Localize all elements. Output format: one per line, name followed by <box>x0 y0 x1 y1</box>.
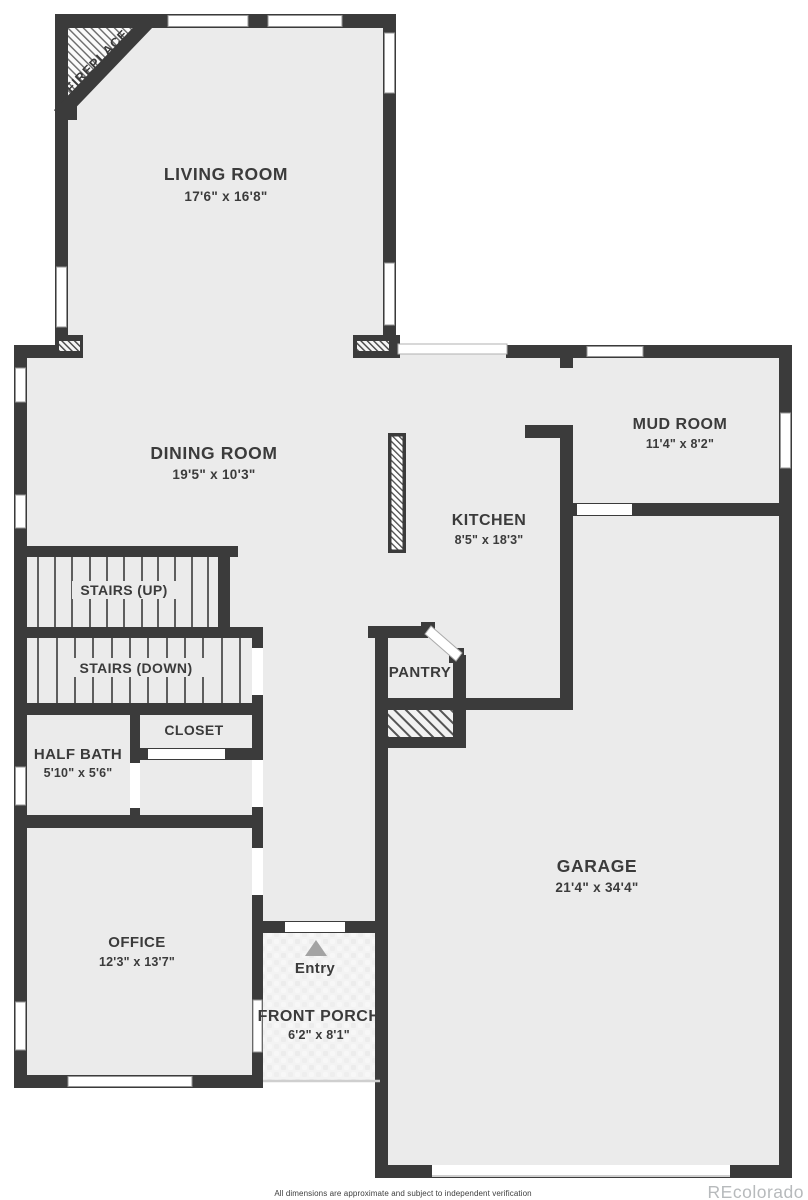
dining-room-label: DINING ROOM <box>150 443 277 463</box>
patio-opening <box>398 344 507 354</box>
kitchen-island <box>388 433 406 553</box>
window <box>385 33 395 93</box>
living-room-dims: 17'6" x 16'8" <box>184 189 267 204</box>
watermark: REcolorado <box>708 1182 804 1200</box>
half-bath-label: HALF BATH <box>34 746 122 763</box>
front-door-opening <box>285 922 345 932</box>
garage-upper-floor <box>566 510 786 710</box>
window <box>57 267 67 327</box>
window <box>16 1002 26 1050</box>
stairs-up-label: STAIRS (UP) <box>80 582 167 598</box>
window <box>587 347 643 357</box>
hall-opening <box>252 760 263 807</box>
column-hatch-left <box>59 341 80 351</box>
hall-floor <box>252 707 382 932</box>
floor-plan-page: FIREPLACE <box>0 0 808 1200</box>
closet-label: CLOSET <box>164 722 223 738</box>
garage-floor <box>382 707 786 1169</box>
window <box>16 495 26 528</box>
kitchen-label: KITCHEN <box>452 512 527 529</box>
floor-plan-svg: FIREPLACE <box>0 0 808 1200</box>
column-hatch-right <box>357 341 389 351</box>
living-room-label: LIVING ROOM <box>164 164 288 184</box>
closet-door-opening <box>148 749 225 759</box>
window <box>16 767 26 805</box>
garage-step-landing <box>388 710 453 737</box>
mud-room-dims: 11'4" x 8'2" <box>646 437 714 451</box>
office-dims: 12'3" x 13'7" <box>99 955 175 969</box>
fireplace-jamb <box>55 103 77 120</box>
garage-door-opening <box>432 1165 730 1175</box>
window <box>781 413 791 468</box>
disclaimer-text: All dimensions are approximate and subje… <box>274 1189 531 1198</box>
mud-room-label: MUD ROOM <box>633 416 728 433</box>
entry-label: Entry <box>295 960 336 977</box>
front-porch-label: FRONT PORCH <box>258 1008 381 1025</box>
garage-dims: 21'4" x 34'4" <box>555 880 638 895</box>
basement-door-opening <box>252 648 263 695</box>
window <box>16 368 26 402</box>
office-door-opening <box>252 848 263 895</box>
mudroom-door-opening <box>577 504 632 515</box>
pantry-label: PANTRY <box>389 664 451 681</box>
garage-label: GARAGE <box>557 856 637 876</box>
kitchen-dims: 8'5" x 18'3" <box>455 533 524 547</box>
half-bath-dims: 5'10" x 5'6" <box>44 766 113 780</box>
front-porch-dims: 6'2" x 8'1" <box>288 1028 350 1042</box>
half-bath-door-opening <box>130 763 140 808</box>
window <box>68 1077 192 1087</box>
stairs-down-label: STAIRS (DOWN) <box>79 660 192 676</box>
window <box>168 16 248 27</box>
dining-room-dims: 19'5" x 10'3" <box>172 467 255 482</box>
office-label: OFFICE <box>108 934 165 951</box>
window <box>385 263 395 325</box>
window <box>268 16 342 27</box>
